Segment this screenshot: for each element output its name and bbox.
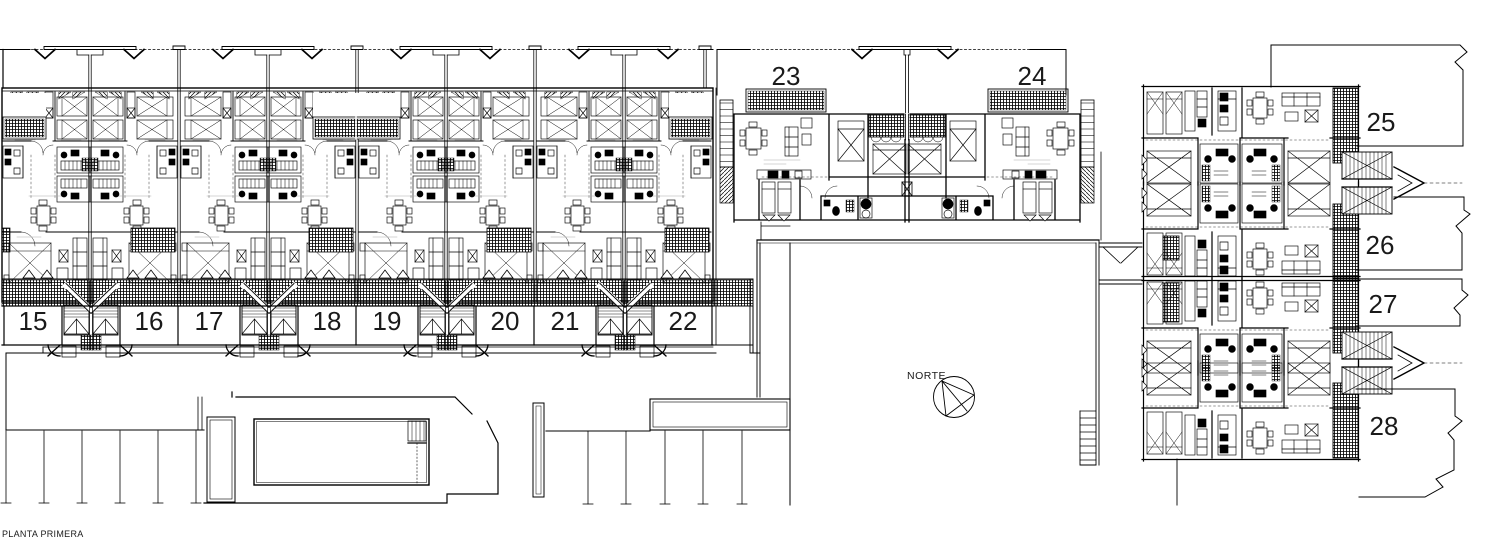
svg-text:24: 24 [1018,61,1047,91]
svg-text:21: 21 [551,306,580,336]
svg-text:18: 18 [313,306,342,336]
svg-text:15: 15 [19,306,48,336]
svg-text:23: 23 [772,61,801,91]
svg-text:17: 17 [195,306,224,336]
svg-text:27: 27 [1369,289,1398,319]
svg-text:NORTE: NORTE [907,370,946,382]
svg-text:26: 26 [1366,230,1395,260]
svg-text:PLANTA PRIMERA: PLANTA PRIMERA [2,529,84,539]
svg-text:25: 25 [1367,107,1396,137]
svg-text:28: 28 [1370,411,1399,441]
svg-text:20: 20 [491,306,520,336]
svg-text:19: 19 [373,306,402,336]
svg-text:16: 16 [135,306,164,336]
svg-text:22: 22 [669,306,698,336]
